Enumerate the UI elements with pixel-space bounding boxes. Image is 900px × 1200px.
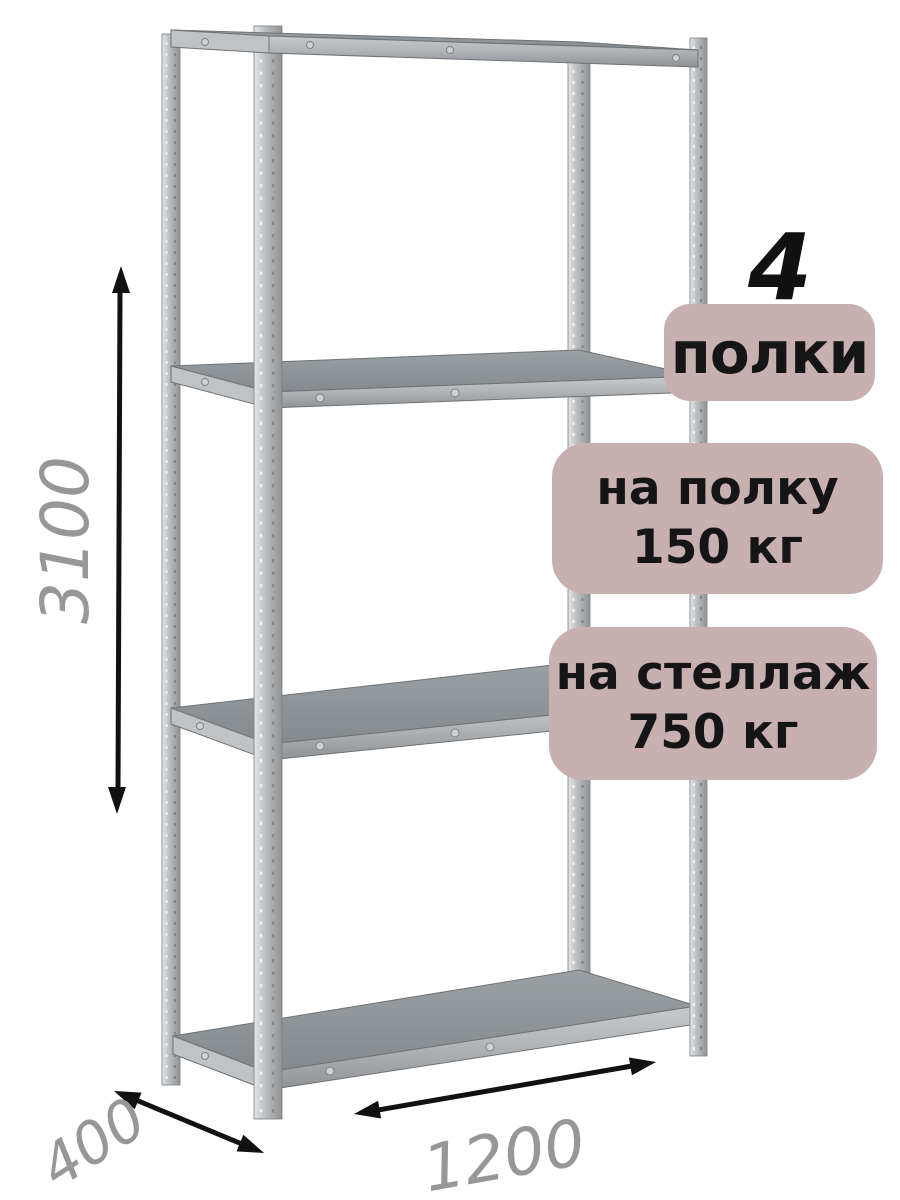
width-dimension-label: 1200 xyxy=(418,1106,591,1200)
height-arrow-up-icon xyxy=(112,266,130,293)
width-arrow-left-icon xyxy=(354,1101,381,1119)
rack-post-front-left xyxy=(254,26,282,1119)
depth-dimension: 400 xyxy=(28,1084,264,1200)
shelf-load-badge: на полку 150 кг xyxy=(552,443,883,594)
width-arrow-line xyxy=(378,1066,632,1110)
height-dimension-label: 3100 xyxy=(27,456,104,624)
height-arrow-line xyxy=(118,291,120,789)
height-dimension: 3100 xyxy=(27,266,130,814)
shelf-count-number: 4 xyxy=(720,222,840,314)
shelf-load-line2: 150 кг xyxy=(632,519,803,577)
shelf-count-badge: полки xyxy=(664,304,875,401)
rack-shelf-2 xyxy=(171,350,698,408)
rack-load-badge: на стеллаж 750 кг xyxy=(549,627,877,780)
product-image: 3100 400 1200 4 полки на полку 150 кг на… xyxy=(0,0,900,1200)
depth-arrow-right-icon xyxy=(237,1135,265,1153)
shelf-load-line1: на полку xyxy=(596,460,838,518)
width-arrow-right-icon xyxy=(629,1058,656,1076)
rack-shelf-1 xyxy=(171,30,698,67)
rack-load-line2: 750 кг xyxy=(628,704,799,762)
shelving-rack-illustration: 3100 400 1200 xyxy=(0,0,900,1200)
height-arrow-down-icon xyxy=(108,787,126,814)
shelf-count-badge-label: полки xyxy=(671,319,868,387)
width-dimension: 1200 xyxy=(354,1058,656,1200)
rack-post-back-left xyxy=(162,34,180,1085)
rack-shelf-4 xyxy=(173,970,697,1090)
rack-load-line1: на стеллаж xyxy=(556,645,871,703)
